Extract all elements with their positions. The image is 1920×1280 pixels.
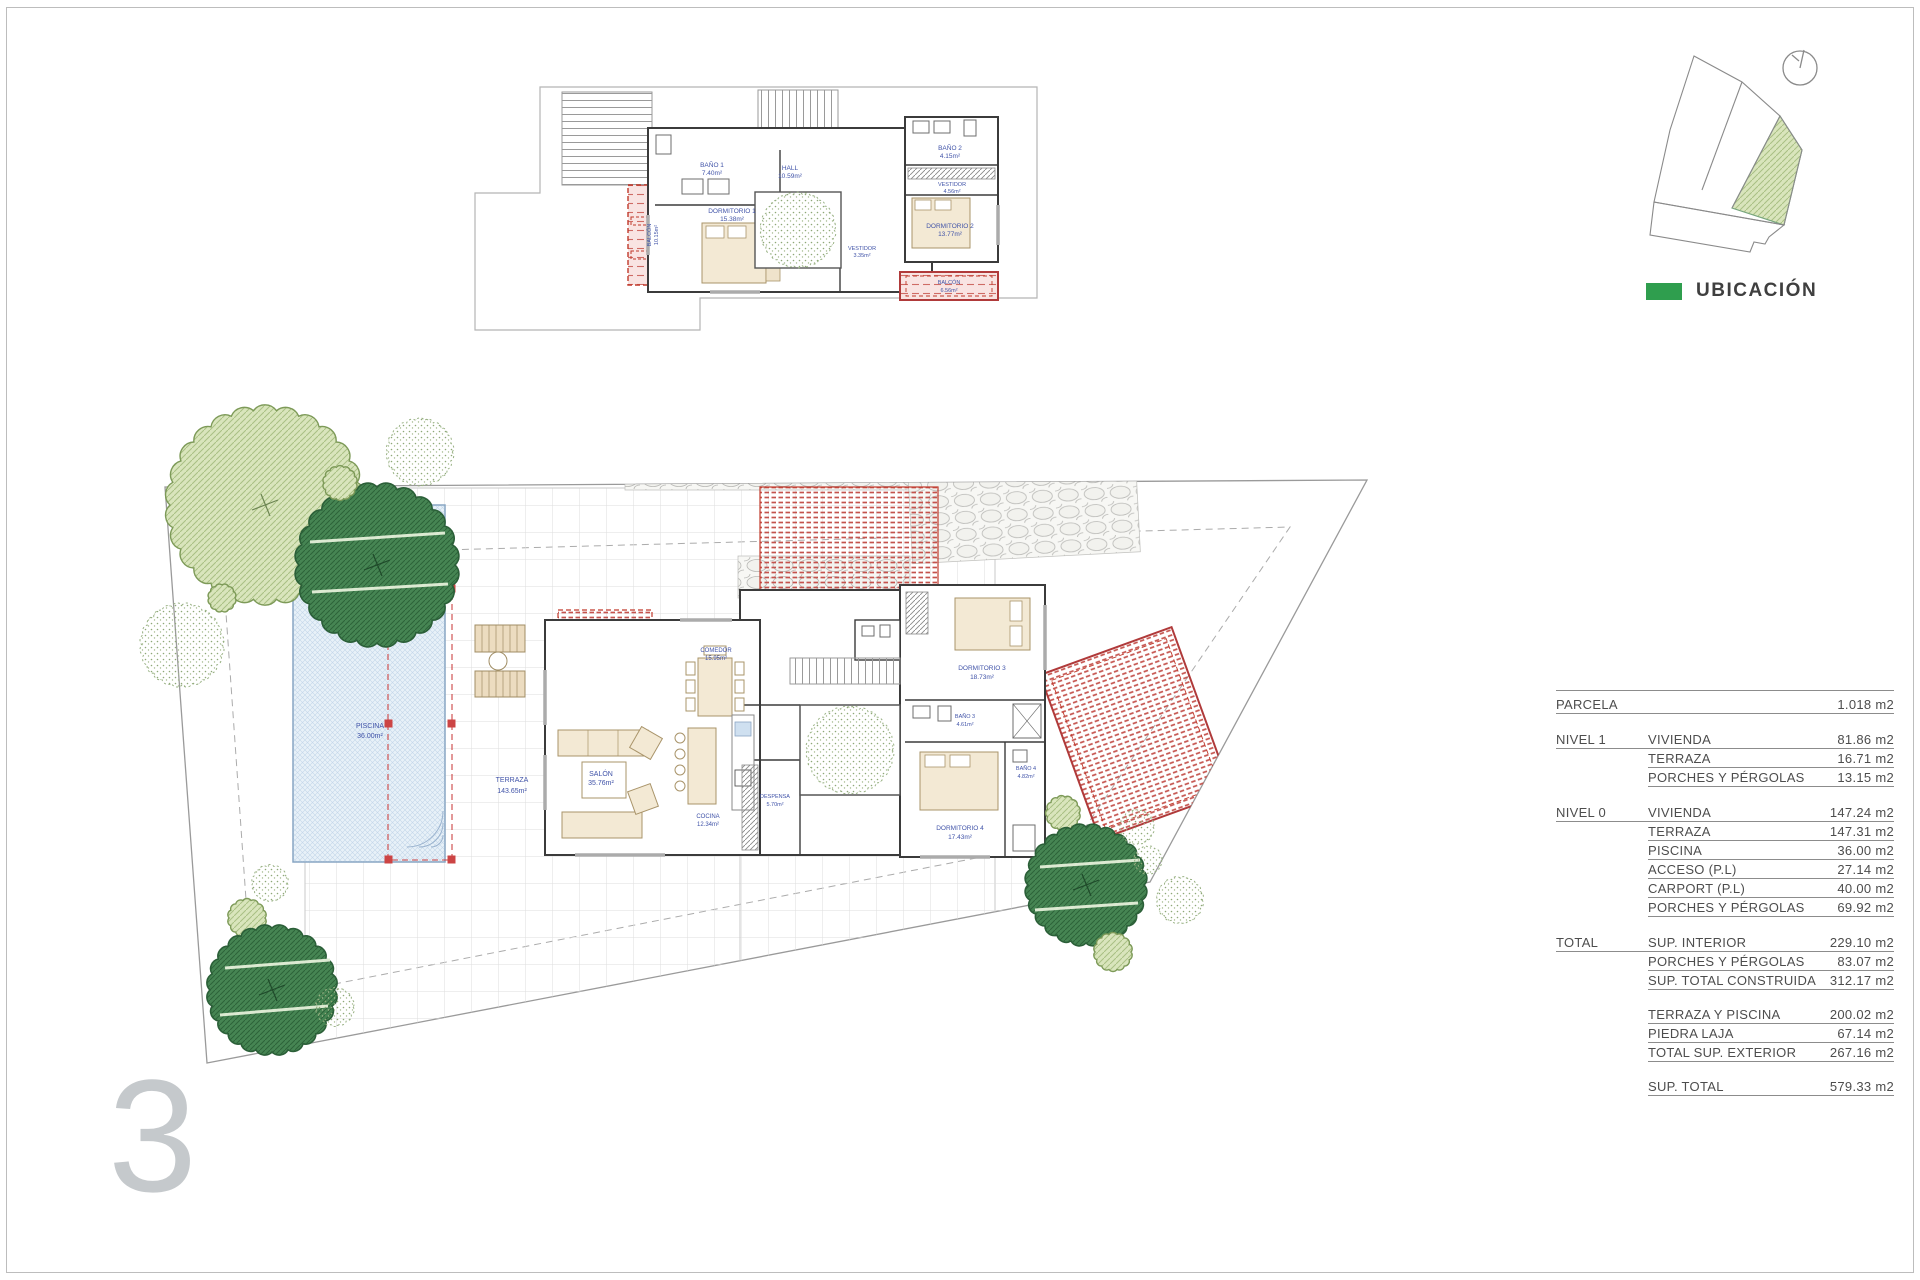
label-dormitorio4-area: 17.43m² bbox=[948, 834, 973, 841]
table-value-cell: 83.07 m2 bbox=[1837, 953, 1894, 970]
ubicacion-legend: UBICACIÓN bbox=[1646, 280, 1817, 302]
table-value-cell: 1.018 m2 bbox=[1837, 696, 1894, 713]
table-row: NIVEL 1VIVIENDA81.86 m2 bbox=[1556, 729, 1894, 749]
house-nivel0 bbox=[545, 585, 1045, 857]
label-bano3-name: BAÑO 3 bbox=[955, 713, 975, 720]
table-value-cell: 67.14 m2 bbox=[1837, 1025, 1894, 1042]
table-item-cell: PORCHES Y PÉRGOLAS bbox=[1648, 953, 1837, 970]
table-group-cell: TOTAL bbox=[1556, 934, 1648, 951]
bush-small-light bbox=[323, 466, 357, 501]
pergola-entrance bbox=[760, 487, 938, 592]
table-row: PARCELA1.018 m2 bbox=[1556, 694, 1894, 714]
entrance-steps bbox=[790, 658, 900, 684]
sheet-number: 3 bbox=[108, 1056, 197, 1216]
dormitorio4-furniture bbox=[920, 752, 998, 810]
label-dormitorio1-name: DORMITORIO 1 bbox=[708, 208, 756, 215]
table-value-cell: 147.24 m2 bbox=[1830, 804, 1894, 821]
stone-path-top bbox=[625, 466, 940, 490]
label-vestidor1-name: VESTIDOR bbox=[848, 246, 876, 252]
parcel-map bbox=[1650, 56, 1802, 252]
label-despensa-area: 5.70m² bbox=[766, 802, 783, 808]
table-gap bbox=[1556, 1062, 1894, 1077]
table-item-cell: TERRAZA bbox=[1648, 750, 1837, 767]
table-row: TERRAZA Y PISCINA200.02 m2 bbox=[1556, 1005, 1894, 1024]
label-bano4-area: 4.82m² bbox=[1017, 774, 1034, 780]
bush-sw-3 bbox=[316, 988, 354, 1027]
table-value-cell: 13.15 m2 bbox=[1837, 769, 1894, 786]
table-row: SUP. TOTAL579.33 m2 bbox=[1556, 1077, 1894, 1096]
label-vestidor2-area: 4.56m² bbox=[943, 189, 960, 195]
label-dormitorio2-name: DORMITORIO 2 bbox=[926, 223, 974, 230]
table-row: CARPORT (P.L)40.00 m2 bbox=[1556, 879, 1894, 898]
label-bano1-area: 7.40m² bbox=[702, 170, 723, 177]
table-row: SUP. TOTAL CONSTRUIDA312.17 m2 bbox=[1556, 971, 1894, 990]
table-item-cell: ACCESO (P.L) bbox=[1648, 861, 1837, 878]
table-item-cell: PORCHES Y PÉRGOLAS bbox=[1648, 769, 1837, 786]
label-bano1-name: BAÑO 1 bbox=[700, 160, 724, 169]
label-balcon1-name: BALCÓN bbox=[646, 224, 653, 247]
label-hall-area: 10.59m² bbox=[778, 173, 803, 180]
parcel-lot-highlight bbox=[1732, 116, 1802, 225]
table-value-cell: 81.86 m2 bbox=[1837, 731, 1894, 748]
table-item-cell: VIVIENDA bbox=[1648, 731, 1837, 748]
label-cocina-area: 12.34m² bbox=[697, 822, 719, 828]
label-balcon1-area: 10.15m² bbox=[654, 225, 660, 245]
table-row: TERRAZA147.31 m2 bbox=[1556, 822, 1894, 841]
site-plan: PISCINA 36.00m² TERRAZA 143.65m² SALÓN 3… bbox=[120, 370, 1420, 1090]
table-group-cell: NIVEL 1 bbox=[1556, 731, 1648, 748]
label-dormitorio3-area: 18.73m² bbox=[970, 674, 995, 681]
label-dormitorio2-area: 13.77m² bbox=[938, 231, 963, 238]
label-bano2-name: BAÑO 2 bbox=[938, 143, 962, 152]
table-item-cell: VIVIENDA bbox=[1648, 804, 1830, 821]
label-salon-area: 35.76m² bbox=[588, 780, 614, 787]
table-item-cell: PORCHES Y PÉRGOLAS bbox=[1648, 899, 1837, 916]
table-value-cell: 579.33 m2 bbox=[1830, 1078, 1894, 1095]
table-item-cell: PISCINA bbox=[1648, 842, 1837, 859]
location-map bbox=[1632, 30, 1912, 280]
table-row: PORCHES Y PÉRGOLAS83.07 m2 bbox=[1556, 952, 1894, 971]
table-value-cell: 40.00 m2 bbox=[1837, 880, 1894, 897]
table-value-cell: 36.00 m2 bbox=[1837, 842, 1894, 859]
label-comedor-name: COMEDOR bbox=[700, 648, 732, 654]
table-value-cell: 16.71 m2 bbox=[1837, 750, 1894, 767]
label-bano3-area: 4.61m² bbox=[956, 722, 973, 728]
bush-se-5 bbox=[1157, 877, 1204, 924]
label-dormitorio4-name: DORMITORIO 4 bbox=[936, 825, 984, 832]
label-dormitorio3-name: DORMITORIO 3 bbox=[958, 665, 1006, 672]
table-item-cell: SUP. INTERIOR bbox=[1648, 934, 1830, 951]
table-row: PISCINA36.00 m2 bbox=[1556, 841, 1894, 860]
stairs-top-left bbox=[562, 92, 652, 185]
upper-floor-plan: BAÑO 1 7.40m² DORMITORIO 1 15.38m² VESTI… bbox=[450, 55, 1050, 350]
table-item-cell: SUP. TOTAL bbox=[1648, 1078, 1830, 1095]
closet-vestidor2 bbox=[908, 168, 995, 179]
north-arrow-icon bbox=[1783, 50, 1817, 85]
label-vestidor1-area: 3.35m² bbox=[853, 253, 870, 259]
label-salon-name: SALÓN bbox=[589, 769, 613, 778]
label-balcon2-name: BALCÓN bbox=[938, 279, 961, 286]
table-gap bbox=[1556, 990, 1894, 1005]
table-value-cell: 312.17 m2 bbox=[1830, 972, 1894, 989]
label-hall-name: HALL bbox=[782, 165, 799, 172]
table-value-cell: 200.02 m2 bbox=[1830, 1006, 1894, 1023]
table-item-cell: PIEDRA LAJA bbox=[1648, 1025, 1837, 1042]
label-dormitorio1-area: 15.38m² bbox=[720, 216, 745, 223]
bush-small-left bbox=[208, 584, 236, 612]
table-group-cell: NIVEL 0 bbox=[1556, 804, 1648, 821]
label-piscina-area: 36.00m² bbox=[357, 733, 383, 740]
bush-se-3 bbox=[1134, 846, 1162, 874]
balcony-right bbox=[900, 272, 998, 300]
table-row: NIVEL 0VIVIENDA147.24 m2 bbox=[1556, 802, 1894, 822]
table-row: TOTALSUP. INTERIOR229.10 m2 bbox=[1556, 932, 1894, 952]
label-bano4-name: BAÑO 4 bbox=[1016, 765, 1036, 772]
table-row: TERRAZA16.71 m2 bbox=[1556, 749, 1894, 768]
label-despensa-name: DESPENSA bbox=[760, 794, 790, 800]
areas-table: PARCELA1.018 m2NIVEL 1VIVIENDA81.86 m2TE… bbox=[1556, 690, 1894, 1096]
label-cocina-name: COCINA bbox=[696, 814, 719, 820]
table-row: TOTAL SUP. EXTERIOR267.16 m2 bbox=[1556, 1043, 1894, 1062]
table-value-cell: 69.92 m2 bbox=[1837, 899, 1894, 916]
table-value-cell: 267.16 m2 bbox=[1830, 1044, 1894, 1061]
label-piscina-name: PISCINA bbox=[356, 723, 384, 730]
patio-tree bbox=[760, 192, 835, 268]
patio-tree-nivel0 bbox=[806, 706, 894, 794]
table-value-cell: 229.10 m2 bbox=[1830, 934, 1894, 951]
terrace-paving-right bbox=[740, 840, 1070, 1030]
label-vestidor2-name: VESTIDOR bbox=[938, 182, 966, 188]
label-balcon2-area: 6.56m² bbox=[940, 288, 957, 294]
label-terraza-name: TERRAZA bbox=[496, 777, 529, 784]
ubicacion-label: UBICACIÓN bbox=[1696, 280, 1817, 302]
plan-sheet: { "page": { "sheet_number": "3" }, "loca… bbox=[0, 0, 1920, 1280]
table-value-cell: 27.14 m2 bbox=[1837, 861, 1894, 878]
table-row: PIEDRA LAJA67.14 m2 bbox=[1556, 1024, 1894, 1043]
bush-se-4 bbox=[1094, 933, 1132, 972]
despensa-shelves bbox=[742, 765, 758, 850]
bush-stipple bbox=[386, 418, 453, 486]
table-gap bbox=[1556, 787, 1894, 802]
table-value-cell: 147.31 m2 bbox=[1830, 823, 1894, 840]
table-item-cell: TERRAZA bbox=[1648, 823, 1830, 840]
table-item-cell: CARPORT (P.L) bbox=[1648, 880, 1837, 897]
table-row: PORCHES Y PÉRGOLAS13.15 m2 bbox=[1556, 768, 1894, 787]
label-comedor-area: 15.95m² bbox=[705, 656, 727, 662]
table-group-cell: PARCELA bbox=[1556, 696, 1648, 713]
table-item-cell: SUP. TOTAL CONSTRUIDA bbox=[1648, 972, 1830, 989]
table-gap bbox=[1556, 714, 1894, 729]
label-bano2-area: 4.15m² bbox=[940, 153, 961, 160]
label-terraza-area: 143.65m² bbox=[497, 788, 527, 795]
table-item-cell: TOTAL SUP. EXTERIOR bbox=[1648, 1044, 1830, 1061]
table-gap bbox=[1556, 917, 1894, 932]
table-item-cell: TERRAZA Y PISCINA bbox=[1648, 1006, 1830, 1023]
ubicacion-swatch bbox=[1646, 283, 1682, 300]
table-row: PORCHES Y PÉRGOLAS69.92 m2 bbox=[1556, 898, 1894, 917]
table-row: ACCESO (P.L)27.14 m2 bbox=[1556, 860, 1894, 879]
